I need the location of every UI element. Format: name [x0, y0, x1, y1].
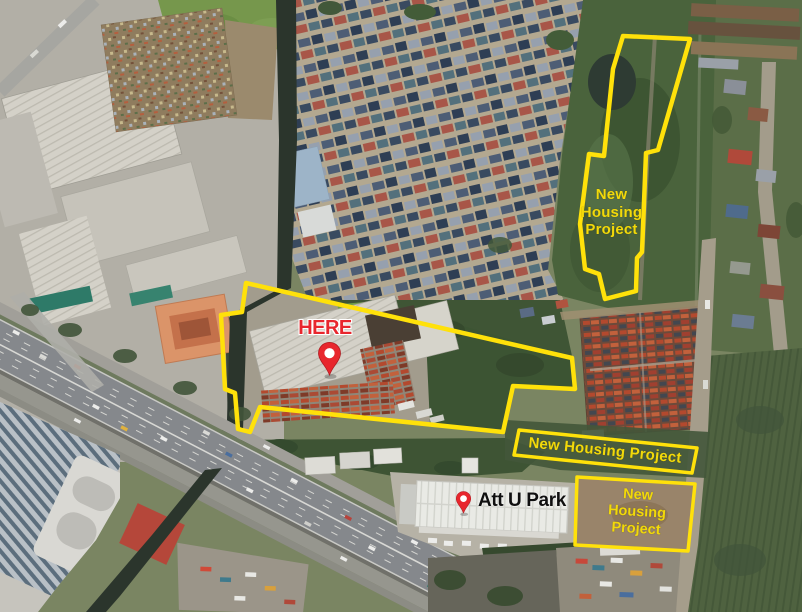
annotated-satellite-map: New Housing Project New Housing Project … — [0, 0, 802, 612]
dirt-patch — [612, 501, 668, 529]
housing-area-north — [280, 0, 585, 303]
junkyard — [101, 8, 278, 132]
satellite-imagery — [0, 0, 802, 612]
